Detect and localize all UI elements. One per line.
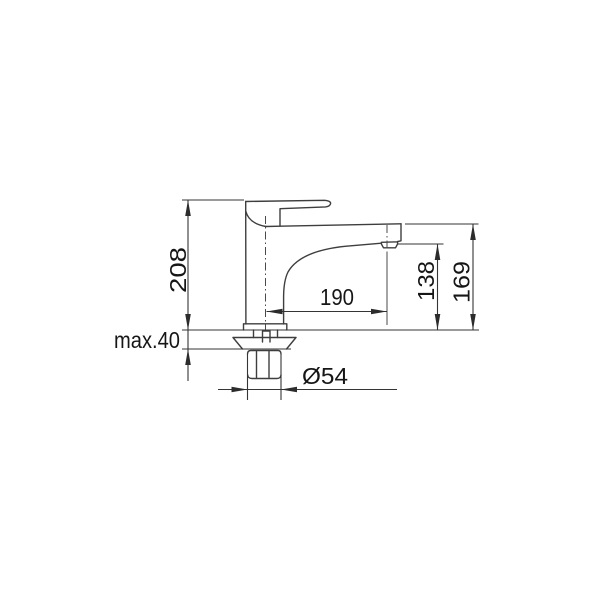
dim-138-arrow-up bbox=[435, 244, 441, 260]
valve-stem-tab bbox=[263, 331, 271, 342]
dim-54-arrow-right bbox=[232, 387, 248, 393]
dim-169-arrow-down bbox=[470, 314, 476, 330]
dim-54-arrow-left bbox=[281, 387, 297, 393]
dim-label-spout-top-height: 169 bbox=[449, 261, 475, 303]
dim-label-deck-thickness: max.40 bbox=[114, 327, 180, 353]
mounting-nut bbox=[248, 351, 282, 379]
dimension-total-height: 208 bbox=[165, 200, 244, 330]
dim-label-spout-reach: 190 bbox=[320, 284, 354, 310]
faucet-spout-top-edge bbox=[266, 224, 401, 227]
faucet-dimension-diagram: 208 max.40 190 138 16 bbox=[0, 0, 600, 600]
dim-208-arrow-down bbox=[185, 314, 191, 330]
dim-label-total-height: 208 bbox=[165, 247, 191, 293]
dim-label-outlet-height: 138 bbox=[413, 261, 439, 301]
dimension-base-diameter: Ø54 bbox=[218, 354, 397, 400]
nut-facet-lines bbox=[257, 352, 270, 378]
dimension-deck-thickness: max.40 bbox=[114, 327, 191, 381]
faucet-spout-tip bbox=[398, 224, 401, 242]
technical-drawing-page: 208 max.40 190 138 16 bbox=[0, 0, 600, 600]
faucet-cap-fillet bbox=[246, 212, 266, 227]
dim-190-arrow-left bbox=[267, 309, 283, 315]
dim-max40-arrow-up bbox=[185, 349, 191, 365]
faucet-lever-handle bbox=[246, 200, 331, 226]
dim-169-arrow-up bbox=[470, 224, 476, 240]
dim-label-base-diameter: Ø54 bbox=[302, 363, 348, 389]
dim-190-arrow-right bbox=[371, 309, 387, 315]
aerator-outlet bbox=[381, 242, 397, 248]
dim-208-arrow-up bbox=[185, 200, 191, 216]
dim-138-arrow-down bbox=[435, 314, 441, 330]
dimension-outlet-height: 138 bbox=[398, 244, 444, 330]
mounting-flange bbox=[233, 338, 296, 350]
